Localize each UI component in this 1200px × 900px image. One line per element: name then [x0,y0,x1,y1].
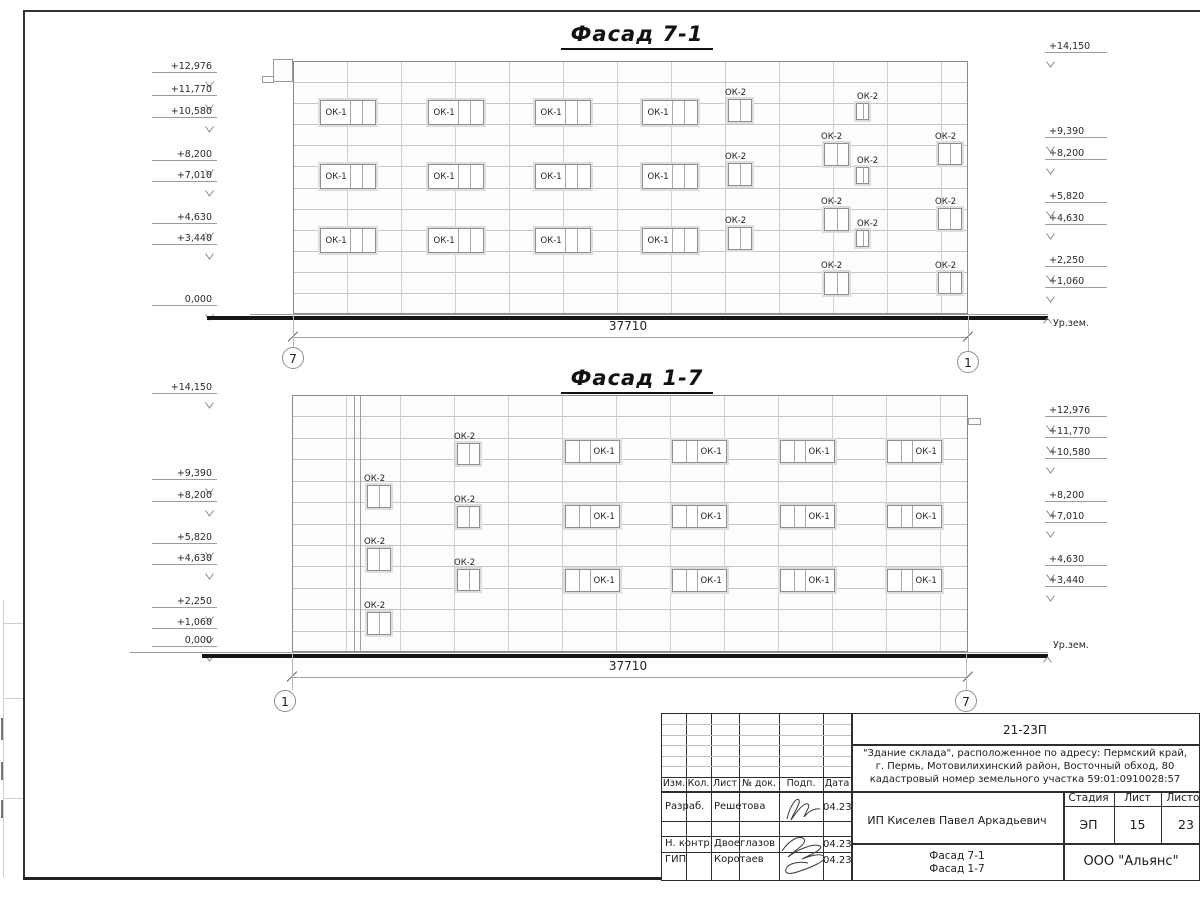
panel-joint-line [670,396,671,651]
window-ok2 [457,443,480,465]
window-ok1: ОК-1 [320,100,376,125]
window-divider [950,273,951,293]
panel-joint-line [294,209,967,210]
tb-sheets-label: Листов [1161,791,1200,806]
window-divider [565,101,566,124]
tb-description-line: кадастровый номер земельного участка 59:… [854,773,1196,786]
window-divider [362,165,363,188]
window-divider [577,165,578,188]
window-label: ОК-1 [697,506,725,527]
elevation-mark-label: +1,060 [1049,276,1084,287]
window-label: ОК-1 [644,101,672,124]
window-label: ОК-1 [537,101,565,124]
dimension-line [293,337,968,338]
panel-joint-line [779,62,780,313]
window-divider [470,165,471,188]
panel-joint-line [293,438,967,439]
window-label: ОК-1 [912,570,940,591]
window-label: ОК-2 [364,601,385,611]
window-label: ОК-1 [322,101,350,124]
dimension-label: 37710 [588,659,668,673]
window-label: ОК-2 [725,88,746,98]
panel-joint-line [617,62,618,313]
panel-joint-line [778,396,779,651]
axis-leader-line [293,314,294,347]
window-label: ОК-1 [644,229,672,252]
panel-joint-line [293,609,967,610]
panel-joint-line [294,188,967,189]
elevation-mark-label: +4,630 [144,212,212,223]
window-ok2 [367,485,391,508]
window-divider [579,441,580,462]
window-label: ОК-1 [430,165,458,188]
elevation-mark-label: 0,000 [144,294,212,305]
window-divider [577,101,578,124]
window-divider [565,165,566,188]
panel-joint-line [294,251,967,252]
window-divider [458,229,459,252]
window-ok1: ОК-1 [672,505,727,528]
parapet-ledge [273,59,293,82]
window-label: ОК-1 [805,570,833,591]
panel-joint-line [294,293,967,294]
ground-level-label: Ур.зем. [1053,318,1089,329]
window-divider [684,101,685,124]
elevation-mark-icon [205,608,214,615]
elevation-mark-icon [205,394,214,401]
window-ok2 [457,506,480,528]
axis-leader-line [968,314,969,351]
window-label: ОК-1 [322,165,350,188]
tb-line [662,745,851,746]
tb-line [662,766,851,767]
window-divider [565,229,566,252]
panel-joint-line [293,459,967,460]
tb-stage-label: Стадия [1063,791,1114,806]
window-divider [901,570,902,591]
elevation-mark-icon [205,224,214,231]
window-label: ОК-1 [912,441,940,462]
window-ok1: ОК-1 [428,164,484,189]
elevation-mark-icon [1046,267,1055,274]
panel-joint-line [725,62,726,313]
tb-company: ООО "Альянс" [1063,845,1199,878]
window-label: ОК-2 [857,219,878,229]
axis-bubble: 1 [957,351,979,373]
tb-stage-value: ЭП [1063,806,1114,843]
elevation-mark-icon [205,480,214,487]
ground-line-thin [130,652,1048,653]
window-label: ОК-2 [725,152,746,162]
window-ok1: ОК-1 [642,100,698,125]
window-divider [740,228,741,249]
elevation-mark-icon [205,502,214,509]
window-label: ОК-2 [725,216,746,226]
window-label: ОК-1 [537,165,565,188]
elevation-mark-label: +1,060 [144,617,212,628]
window-ok2 [938,208,962,230]
window-label: ОК-1 [697,441,725,462]
elevation-mark-icon [1046,288,1055,295]
window-ok2 [728,163,752,186]
tb-line [711,714,712,880]
elevation-mark-label: 0,000 [144,635,212,646]
window-divider [362,229,363,252]
window-label: ОК-1 [590,506,618,527]
window-label: ОК-1 [697,570,725,591]
elevation-mark-label: +4,630 [1049,213,1084,224]
window-divider [950,209,951,229]
tb-client: ИП Киселев Павел Аркадьевич [854,806,1060,836]
window-divider [740,164,741,185]
window-divider [837,144,838,165]
elevation-mark-label: +4,630 [1049,554,1084,565]
tb-line [662,735,851,736]
window-label: ОК-1 [322,229,350,252]
elevation-mark-label: +11,770 [1049,426,1090,437]
elevation-mark-icon [1046,138,1055,145]
elevation-mark-icon [1046,523,1055,530]
tb-line [662,756,851,757]
window-divider [794,506,795,527]
window-label: ОК-1 [590,570,618,591]
elevation-mark-label: +10,580 [144,106,212,117]
window-label: ОК-1 [805,441,833,462]
window-label: ОК-2 [857,92,878,102]
window-ok2 [457,569,480,591]
panel-joint-line [293,416,967,417]
window-divider [469,570,470,590]
facade-title-wrap: Фасад 1-7 [487,366,787,394]
window-divider [350,165,351,188]
window-divider [672,101,673,124]
window-divider [470,229,471,252]
window-divider [579,506,580,527]
panel-joint-line [293,524,967,525]
window-ok2 [728,227,752,250]
panel-joint-line [562,396,563,651]
elevation-mark-label: +4,630 [144,553,212,564]
window-label: ОК-1 [430,101,458,124]
elevation-mark-label: +10,580 [1049,447,1090,458]
elevation-mark-icon [1046,438,1055,445]
elevation-mark-label: +3,440 [144,233,212,244]
tb-description-line: г. Пермь, Мотовилихинский район, Восточн… [854,760,1196,773]
elevation-mark-label: +8,200 [1049,148,1084,159]
window-label: ОК-2 [857,156,878,166]
window-divider [863,104,864,119]
window-label: ОК-2 [935,261,956,271]
window-divider [901,506,902,527]
tb-line [686,714,687,880]
window-ok1: ОК-1 [780,440,835,463]
window-ok2 [856,167,869,184]
window-label: ОК-2 [821,197,842,207]
elevation-mark-icon [1046,53,1055,60]
window-label: ОК-2 [454,432,475,442]
ground-line-thin [250,314,1048,315]
window-label: ОК-2 [454,558,475,568]
elevation-mark-label: +12,976 [1049,405,1090,416]
window-divider [684,229,685,252]
elevation-mark-label: +8,200 [144,490,212,501]
elevation-mark-label: +11,770 [144,84,212,95]
window-divider [577,229,578,252]
axis-bubble: 7 [955,690,977,712]
window-ok1: ОК-1 [642,228,698,253]
window-divider [350,229,351,252]
window-ok1: ОК-1 [887,505,942,528]
window-divider [469,444,470,464]
panel-joint-line [293,545,967,546]
elevation-mark-icon [1046,459,1055,466]
tb-col-podp: Подп. [779,777,823,791]
panel-joint-line [293,502,967,503]
window-divider [350,101,351,124]
window-divider [863,231,864,246]
tb-role: ГИП [665,853,686,866]
tb-sheet-label: Лист [1114,791,1161,806]
window-divider [672,229,673,252]
window-label: ОК-2 [821,132,842,142]
window-ok1: ОК-1 [428,228,484,253]
tb-role: Н. контр. [665,837,713,850]
window-ok1: ОК-1 [672,440,727,463]
elevation-mark-icon [1046,566,1055,573]
tb-name: Коротаев [714,853,764,866]
elevation-mark-label: +3,440 [1049,575,1084,586]
elevation-mark-label: +14,150 [144,382,212,393]
window-ok2 [938,272,962,294]
window-ok2 [728,99,752,122]
window-ok1: ОК-1 [535,228,591,253]
window-divider [837,209,838,230]
window-divider [794,570,795,591]
tb-sheets-value: 23 [1161,806,1200,843]
elevation-mark-label: +7,010 [144,170,212,181]
window-divider [458,101,459,124]
window-divider [863,168,864,183]
tb-role: Разраб. [665,800,704,813]
ground-level-mark-icon [1043,309,1052,316]
window-ok2 [367,548,391,571]
panel-joint-line [508,396,509,651]
window-label: ОК-1 [644,165,672,188]
panel-joint-line [293,481,967,482]
elevation-mark-label: +7,010 [1049,511,1084,522]
elevation-mark-icon [205,245,214,252]
window-divider [579,570,580,591]
window-divider [901,441,902,462]
dimension-label: 37710 [588,319,668,333]
panel-joint-line [294,272,967,273]
panel-joint-line [293,566,967,567]
window-ok1: ОК-1 [672,569,727,592]
window-label: ОК-2 [454,495,475,505]
window-divider [379,486,380,507]
window-ok2 [367,612,391,635]
window-divider [362,101,363,124]
signature [780,794,824,824]
window-divider [379,613,380,634]
elevation-mark-label: +5,820 [1049,191,1084,202]
elevation-mark-icon [205,161,214,168]
window-ok1: ОК-1 [535,164,591,189]
window-label: ОК-1 [537,229,565,252]
elevation-mark-label: +5,820 [144,532,212,543]
window-divider [672,165,673,188]
panel-joint-line [294,145,967,146]
axis-leader-line [292,652,293,690]
ground-level-mark-icon [1043,648,1052,655]
window-ok1: ОК-1 [320,164,376,189]
elevation-mark-label: +8,200 [144,149,212,160]
axis-bubble: 1 [274,690,296,712]
elevation-mark-icon [1046,502,1055,509]
drawing-sheet: Фасад 7-1ОК-1ОК-1ОК-1ОК-1ОК-1ОК-1ОК-1ОК-… [0,0,1200,900]
facade-title: Фасад 7-1 [561,22,714,50]
window-label: ОК-1 [590,441,618,462]
elevation-mark-icon [205,544,214,551]
panel-joint-line [509,62,510,313]
window-divider [686,570,687,591]
panel-joint-line [294,82,967,83]
tb-description-line: "Здание склада", расположенное по адресу… [854,747,1196,760]
window-divider [684,165,685,188]
elevation-mark-icon [205,118,214,125]
tb-col-izm: Изм. [662,777,686,791]
window-ok1: ОК-1 [780,569,835,592]
window-ok2 [856,230,869,247]
ground-line-thick [202,654,1048,658]
window-ok1: ОК-1 [887,569,942,592]
tb-line [851,744,1199,746]
window-ok1: ОК-1 [780,505,835,528]
elevation-mark-icon [1046,225,1055,232]
elevation-mark-label: +8,200 [1049,490,1084,501]
window-divider [837,273,838,294]
window-divider [740,100,741,121]
window-divider [794,441,795,462]
window-label: ОК-2 [935,197,956,207]
tb-col-data: Дата [823,777,851,791]
signature [774,833,828,879]
tb-col-kol: Кол. [686,777,711,791]
title-block: Изм. Кол. Лист № док. Подп. Дата Разраб.… [661,713,1200,881]
axis-bubble: 7 [282,347,304,369]
panel-joint-line [401,62,402,313]
tb-doc-number: 21-23П [851,721,1199,739]
window-label: ОК-1 [805,506,833,527]
elevation-mark-label: +12,976 [144,61,212,72]
tb-name: Двоеглазов [714,837,775,850]
panel-joint-line [887,62,888,313]
panel-joint-line [346,396,347,651]
tb-sheet-value: 15 [1114,806,1161,843]
window-ok1: ОК-1 [642,164,698,189]
window-divider [379,549,380,570]
window-ok1: ОК-1 [565,505,620,528]
tb-col-ndok: № док. [739,777,779,791]
elevation-mark-label: +9,390 [1049,126,1084,137]
elevation-mark-label: +9,390 [144,468,212,479]
window-ok1: ОК-1 [320,228,376,253]
window-label: ОК-2 [935,132,956,142]
window-ok2 [938,143,962,165]
window-divider [458,165,459,188]
elevation-mark-icon [205,73,214,80]
elevation-mark-label: +2,250 [144,596,212,607]
elevation-mark-icon [1046,203,1055,210]
window-ok2 [824,272,849,295]
elevation-mark-icon [1046,160,1055,167]
window-ok2 [824,143,849,166]
dimension-line [292,677,968,678]
ground-level-label: Ур.зем. [1053,640,1089,651]
window-ok1: ОК-1 [565,440,620,463]
tb-name: Решетова [714,800,765,813]
pilaster-line [354,396,355,651]
pilaster-line [360,396,361,651]
window-label: ОК-2 [821,261,842,271]
panel-joint-line [294,124,967,125]
window-ok1: ОК-1 [535,100,591,125]
axis-leader-line [966,652,967,690]
tb-date: 04.23 [823,801,851,814]
window-label: ОК-2 [364,537,385,547]
window-divider [950,144,951,164]
parapet-ledge [968,418,981,425]
window-divider [469,507,470,527]
window-divider [686,506,687,527]
panel-joint-line [293,588,967,589]
tb-line [662,724,851,725]
window-ok1: ОК-1 [565,569,620,592]
elevation-mark-icon [205,182,214,189]
panel-joint-line [400,396,401,651]
elevation-mark-icon [205,306,214,313]
elevation-mark-icon [205,565,214,572]
panel-joint-line [293,631,967,632]
parapet-ledge [262,76,274,83]
window-label: ОК-1 [430,229,458,252]
window-divider [686,441,687,462]
window-label: ОК-2 [364,474,385,484]
elevation-mark-icon [1046,587,1055,594]
tb-col-list: Лист [711,777,739,791]
tb-drawing-title-line: Фасад 7-1 [854,850,1060,863]
tb-drawing-title-line: Фасад 1-7 [854,863,1060,876]
elevation-mark-label: +14,150 [1049,41,1090,52]
window-ok1: ОК-1 [887,440,942,463]
elevation-mark-icon [205,96,214,103]
elevation-mark-icon [1046,417,1055,424]
window-ok2 [824,208,849,231]
window-ok1: ОК-1 [428,100,484,125]
window-ok2 [856,103,869,120]
elevation-mark-label: +2,250 [1049,255,1084,266]
window-divider [470,101,471,124]
facade-title: Фасад 1-7 [561,366,714,394]
window-label: ОК-1 [912,506,940,527]
facade-title-wrap: Фасад 7-1 [487,22,787,50]
